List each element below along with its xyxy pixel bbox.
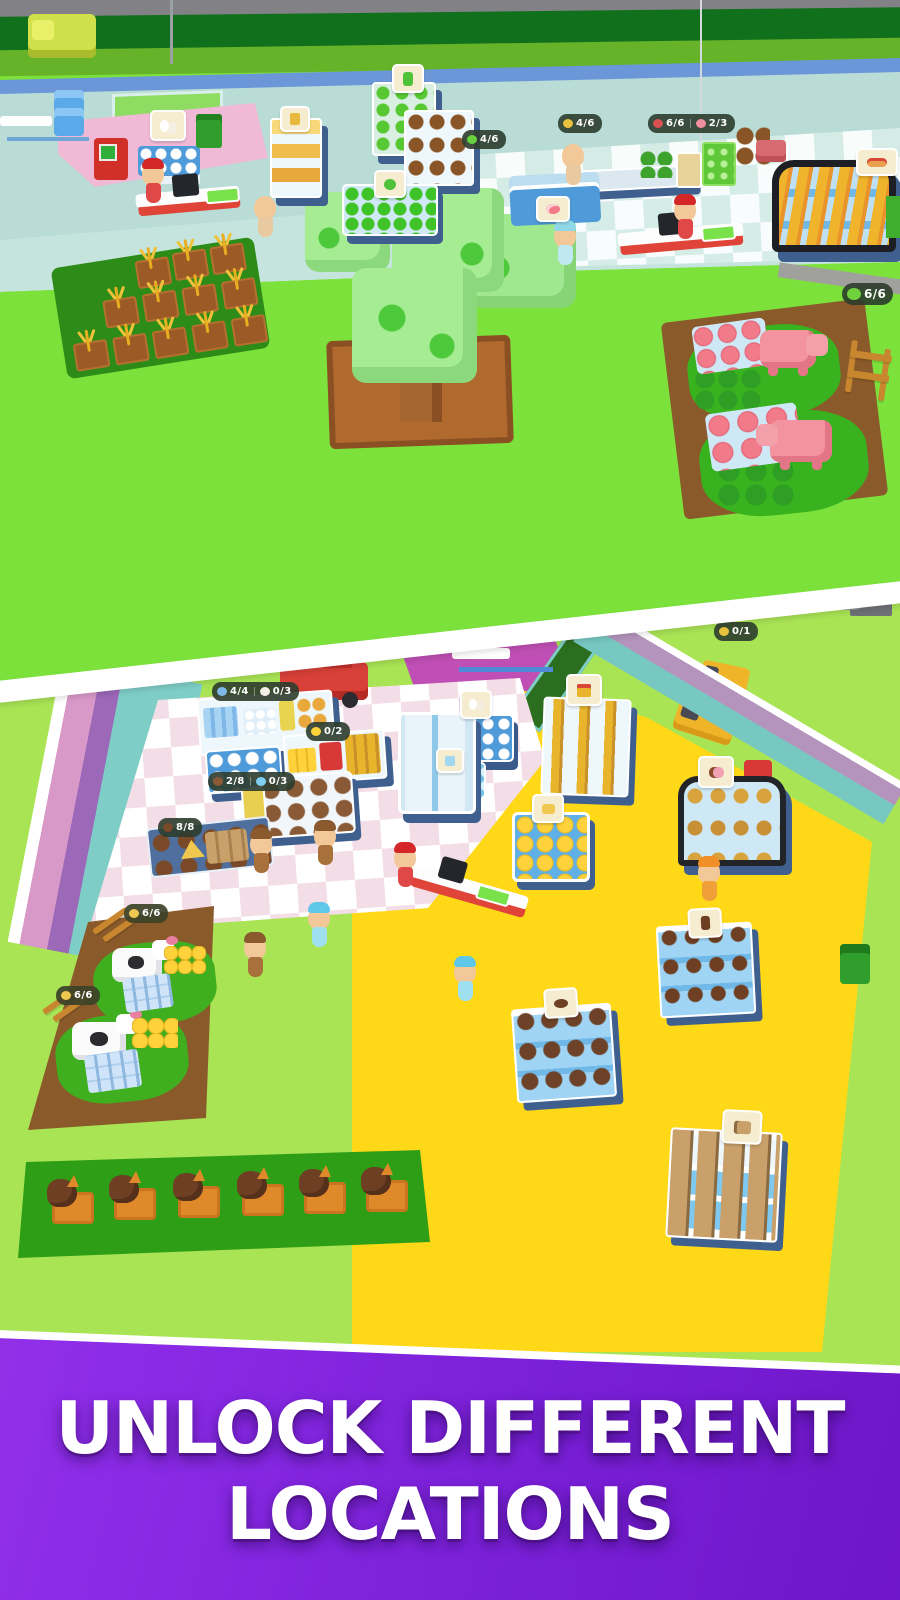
barrel-shelf[interactable] bbox=[404, 110, 474, 186]
flour-sack-icon bbox=[733, 1120, 751, 1134]
farmer-character bbox=[248, 828, 274, 873]
cocoa-plant bbox=[299, 1169, 329, 1197]
butter-icon bbox=[542, 804, 555, 814]
cake-sign bbox=[698, 756, 734, 788]
body bbox=[312, 927, 327, 947]
cheese-wedge bbox=[179, 839, 205, 859]
worker-character bbox=[696, 856, 722, 901]
hotdog-sign bbox=[856, 148, 898, 176]
fries-boxes bbox=[345, 733, 382, 775]
vending-screen bbox=[99, 144, 117, 161]
body bbox=[254, 853, 269, 873]
milk-boxes bbox=[203, 706, 239, 738]
farmer-character bbox=[312, 820, 338, 865]
stock-count: 0/3 bbox=[273, 687, 292, 697]
apple-icon bbox=[384, 179, 396, 190]
promo-text-line1: UNLOCK DIFFERENT bbox=[0, 1392, 900, 1464]
divider bbox=[690, 119, 691, 128]
meat-icon bbox=[546, 204, 560, 214]
meat-icon bbox=[696, 119, 706, 128]
bread-case[interactable] bbox=[678, 776, 786, 866]
harvest-badge: 6/6 bbox=[842, 283, 893, 305]
egg-icon bbox=[160, 120, 169, 132]
gold-item-icon bbox=[563, 119, 573, 128]
wheat-cell bbox=[152, 326, 190, 359]
wheat-plant bbox=[124, 323, 130, 345]
choco-sign bbox=[687, 907, 723, 939]
hotdog-icon bbox=[867, 158, 887, 167]
butter-stack[interactable] bbox=[164, 946, 206, 974]
stock-badge-pair: 6/6 2/3 bbox=[648, 114, 735, 133]
cocoa-bean-icon bbox=[554, 998, 569, 1008]
cow-spot bbox=[128, 956, 144, 969]
wheat-plant bbox=[164, 317, 170, 339]
ice-icon bbox=[256, 777, 266, 786]
flour-sign bbox=[721, 1109, 763, 1145]
green-apple-icon bbox=[847, 288, 861, 300]
wheat-plant bbox=[243, 305, 249, 327]
wheat-icon bbox=[290, 113, 300, 125]
choco-bottle-icon bbox=[700, 916, 710, 930]
orange-cap bbox=[698, 856, 720, 867]
green-crate-icon bbox=[467, 135, 477, 144]
butter-blocks bbox=[287, 747, 317, 773]
delivery-truck[interactable] bbox=[28, 14, 96, 58]
customer-character bbox=[452, 956, 478, 1001]
recycle-bin[interactable] bbox=[840, 944, 870, 984]
body bbox=[258, 217, 273, 237]
egg-sign bbox=[460, 690, 492, 719]
wheat-plant bbox=[146, 247, 152, 269]
roast-icon bbox=[163, 823, 173, 832]
pen-count: 6/6 bbox=[74, 991, 93, 1001]
pig-head bbox=[806, 334, 828, 356]
pig bbox=[760, 330, 816, 368]
cabbage-row bbox=[694, 368, 764, 410]
blue-cap bbox=[454, 956, 476, 967]
pen-badge: 6/6 bbox=[124, 904, 168, 923]
customer-character bbox=[306, 902, 332, 947]
wheat-cell bbox=[172, 248, 210, 281]
red-box bbox=[319, 742, 343, 771]
cow-spot bbox=[90, 1032, 108, 1046]
divider bbox=[250, 777, 251, 786]
cap bbox=[562, 140, 584, 151]
cashier-character bbox=[140, 158, 166, 203]
pen-count: 6/6 bbox=[142, 909, 161, 919]
meat-tray[interactable] bbox=[691, 317, 771, 375]
cap bbox=[254, 192, 276, 203]
pig bbox=[770, 420, 832, 462]
pig-leg bbox=[780, 460, 790, 470]
butter-icon bbox=[129, 909, 139, 918]
body bbox=[558, 245, 573, 265]
wheat-plant bbox=[203, 311, 209, 333]
wheat-plant bbox=[184, 239, 190, 261]
stock-badge: 8/8 bbox=[158, 818, 202, 837]
apple-sign bbox=[374, 170, 406, 198]
cocoa-plant bbox=[361, 1167, 391, 1195]
harvest-count: 6/6 bbox=[864, 288, 886, 300]
cocoa-plant bbox=[47, 1179, 77, 1207]
meat-stack[interactable] bbox=[756, 140, 786, 162]
wheat-plant bbox=[85, 330, 91, 352]
prep-table[interactable] bbox=[0, 116, 52, 126]
butter-stack[interactable] bbox=[132, 1018, 178, 1048]
milk-icon bbox=[217, 687, 227, 696]
body bbox=[248, 957, 263, 977]
wheat-plant bbox=[193, 274, 199, 296]
body bbox=[678, 219, 693, 239]
cocoa-plant bbox=[237, 1171, 267, 1199]
stock-badge: 4/6 bbox=[558, 114, 602, 133]
red-cap bbox=[674, 194, 696, 205]
wheat-plant bbox=[221, 233, 227, 255]
cocoa-plant bbox=[173, 1173, 203, 1201]
brown-hat bbox=[250, 828, 272, 839]
stock-count: 4/6 bbox=[480, 135, 499, 145]
scanner-pad bbox=[205, 187, 240, 205]
body bbox=[146, 183, 161, 203]
body bbox=[566, 165, 581, 185]
pen-badge: 6/6 bbox=[56, 986, 100, 1005]
egg-sign bbox=[150, 110, 186, 141]
red-cap bbox=[394, 842, 416, 853]
stock-count: 0/2 bbox=[324, 727, 343, 737]
cake-roll-icon bbox=[709, 767, 724, 778]
pig-leg bbox=[812, 460, 822, 470]
pig-leg bbox=[798, 366, 808, 376]
farmer-character bbox=[242, 932, 268, 977]
greens-icon bbox=[403, 72, 413, 86]
wheat-plant bbox=[114, 287, 120, 309]
green-crates[interactable] bbox=[702, 142, 736, 186]
egg-icon bbox=[469, 699, 477, 710]
apple-tree-canopy[interactable] bbox=[352, 268, 477, 383]
meat-sign bbox=[536, 196, 570, 222]
recycle-bin[interactable] bbox=[196, 114, 222, 148]
customer-character bbox=[560, 140, 586, 185]
milk-crates[interactable] bbox=[84, 1048, 143, 1093]
body bbox=[458, 981, 473, 1001]
stock-count: 2/8 bbox=[226, 777, 245, 787]
promo-text-line2: LOCATIONS bbox=[0, 1478, 900, 1550]
stock-count: 4/6 bbox=[576, 119, 595, 129]
cocoa-bean-sign bbox=[543, 987, 579, 1019]
red-item-icon bbox=[653, 119, 663, 128]
stock-badge: 4/6 bbox=[462, 130, 506, 149]
ice-cube-icon bbox=[445, 756, 455, 766]
wheat-plant bbox=[233, 268, 239, 290]
cashier-character bbox=[392, 842, 418, 887]
cocoa-planter[interactable] bbox=[52, 1192, 94, 1224]
wheat-cell bbox=[191, 320, 229, 353]
brown-hat bbox=[314, 820, 336, 831]
grain-sacks bbox=[204, 828, 249, 864]
delivery-badge: 0/1 bbox=[714, 622, 758, 641]
jar-stand[interactable] bbox=[676, 152, 702, 188]
stock-count: 6/6 bbox=[666, 119, 685, 129]
stock-count: 2/3 bbox=[709, 119, 728, 129]
fries-icon bbox=[577, 684, 591, 697]
stock-badge-pair: 4/4 0/3 bbox=[212, 682, 299, 701]
stock-badge-pair: 2/8 0/3 bbox=[208, 772, 295, 791]
stock-count: 8/8 bbox=[176, 823, 195, 833]
cocoa-planter[interactable] bbox=[114, 1188, 156, 1220]
greens-sign bbox=[392, 64, 424, 93]
vending-machine[interactable] bbox=[94, 138, 128, 180]
flour-sack-shelf[interactable] bbox=[665, 1127, 783, 1243]
egg-icon bbox=[260, 687, 270, 696]
wheat-plant bbox=[154, 280, 160, 302]
customer-character bbox=[252, 192, 278, 237]
wheat-sign bbox=[280, 106, 310, 132]
cocoa-plant bbox=[109, 1175, 139, 1203]
stock-count: 4/4 bbox=[230, 687, 249, 697]
scanner-pad bbox=[701, 224, 736, 242]
wall-rack[interactable] bbox=[54, 90, 84, 136]
blue-cap bbox=[308, 902, 330, 913]
body bbox=[398, 867, 413, 887]
brown-hat bbox=[244, 932, 266, 943]
veg-sacks[interactable] bbox=[640, 150, 674, 178]
pig-leg bbox=[768, 366, 778, 376]
cheese-icon bbox=[311, 727, 321, 736]
pig-head bbox=[756, 424, 778, 446]
butter-sign bbox=[532, 794, 564, 823]
light-pole bbox=[170, 0, 173, 64]
stock-badge: 0/2 bbox=[306, 722, 350, 741]
pig-body bbox=[770, 420, 832, 462]
game-promo-screenshot: 4/6 4/6 6/6 2/3 bbox=[0, 0, 900, 1600]
divider bbox=[254, 687, 255, 696]
coin-icon bbox=[719, 627, 729, 636]
cash-register bbox=[172, 173, 200, 197]
ice-sign bbox=[436, 748, 464, 773]
cashier-character bbox=[672, 194, 698, 239]
cow-ear bbox=[166, 936, 178, 945]
egg-tray bbox=[243, 707, 277, 735]
customer-character bbox=[552, 220, 578, 265]
juice-jug bbox=[279, 700, 296, 731]
cocoa-planter[interactable] bbox=[178, 1186, 220, 1218]
fries-sign bbox=[566, 674, 602, 706]
wheat-cell bbox=[73, 339, 111, 372]
fries-shelf[interactable] bbox=[540, 696, 631, 797]
pig-body bbox=[760, 330, 816, 368]
cocoa-planter[interactable] bbox=[242, 1184, 284, 1216]
truck-cab bbox=[32, 20, 54, 40]
stock-count: 0/3 bbox=[269, 777, 288, 787]
wheat-cell bbox=[231, 314, 269, 347]
cocoa-planter[interactable] bbox=[304, 1182, 346, 1214]
milk-crates[interactable] bbox=[122, 973, 174, 1013]
body bbox=[702, 881, 717, 901]
delivery-count: 0/1 bbox=[732, 627, 751, 637]
wheat-cell bbox=[112, 333, 150, 366]
side-bin[interactable] bbox=[886, 196, 900, 238]
cocoa-planter[interactable] bbox=[366, 1180, 408, 1212]
butter-icon bbox=[61, 991, 71, 1000]
red-cap bbox=[142, 158, 164, 169]
cocoa-icon bbox=[213, 777, 223, 786]
body bbox=[318, 845, 333, 865]
